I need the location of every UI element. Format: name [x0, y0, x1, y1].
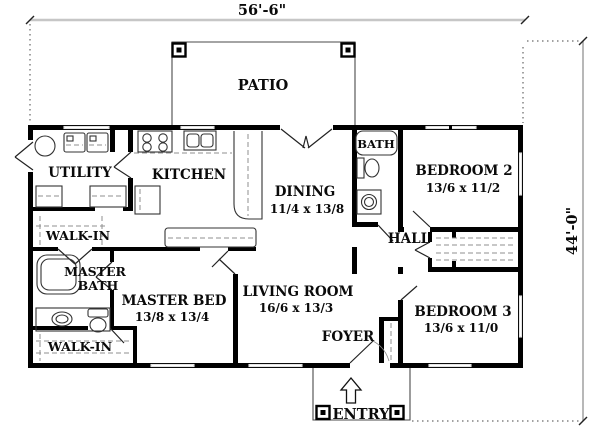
kitchen-pantry: [135, 186, 160, 214]
window-living: [248, 364, 303, 368]
bedroom2-door: [413, 211, 430, 227]
room-label-dining: DINING: [275, 184, 336, 200]
room-size-dining: 11/4 x 13/8: [270, 202, 344, 216]
dimension-height-label: 44'-0": [564, 207, 581, 255]
room-label-kitchen: KITCHEN: [152, 167, 226, 183]
room-size-masterbed: 13/8 x 13/4: [135, 310, 209, 324]
kitchen-sink: [184, 131, 216, 150]
hall-bath-toilet: [357, 158, 379, 178]
labels-group: 56'-6" 44'-0" PATIO UTILITY KITCHEN DINI…: [45, 2, 581, 423]
floor-plan-svg: 56'-6" 44'-0" PATIO UTILITY KITCHEN DINI…: [0, 0, 600, 428]
room-label-masterbath-2: BATH: [78, 278, 119, 293]
water-heater: [35, 136, 55, 156]
hall-closet-shelves: [436, 238, 516, 260]
room-label-utility: UTILITY: [48, 165, 112, 181]
utility-kitchen-door: [114, 152, 131, 178]
window-utility: [63, 126, 110, 130]
patio-french-doors: [281, 129, 332, 148]
room-size-bedroom2: 13/6 x 11/2: [426, 181, 500, 195]
floor-plan-page: 56'-6" 44'-0" PATIO UTILITY KITCHEN DINI…: [0, 0, 600, 428]
entry-post-left: [317, 406, 330, 419]
patio-label: PATIO: [238, 77, 289, 94]
stove: [138, 131, 172, 152]
room-label-masterbed: MASTER BED: [122, 293, 227, 309]
window-bedroom3-bottom: [428, 364, 472, 368]
utility-cabinet-left: [36, 186, 62, 207]
entry-arrow-icon: [341, 378, 361, 403]
patio-post-right: [342, 44, 355, 57]
utility-cabinet-right: [90, 186, 126, 207]
room-size-living: 16/6 x 13/3: [259, 301, 333, 315]
room-label-bath: BATH: [357, 137, 395, 151]
room-label-foyer: FOYER: [322, 329, 375, 345]
window-masterbed: [150, 364, 195, 368]
entry-post-right: [391, 406, 404, 419]
hall-bath-sink: [357, 190, 381, 214]
patio-post-left: [173, 44, 186, 57]
room-label-living: LIVING ROOM: [243, 284, 354, 300]
room-label-bedroom3: BEDROOM 3: [414, 304, 511, 320]
window-kitchen: [180, 126, 215, 130]
window-bedroom2-top: [425, 125, 477, 130]
entry-label: ENTRY: [332, 406, 390, 423]
room-size-bedroom3: 13/6 x 11/0: [424, 321, 498, 335]
bedroom3-door: [401, 286, 417, 300]
dryer: [87, 133, 108, 152]
dimension-width-label: 56'-6": [238, 2, 286, 19]
room-label-hall: HALL: [388, 231, 431, 247]
room-label-masterbath-1: MASTER: [64, 264, 126, 279]
room-label-bedroom2: BEDROOM 2: [415, 163, 512, 179]
window-bedroom3-right: [519, 295, 523, 338]
room-label-walkin-upper: WALK-IN: [45, 228, 110, 243]
living-masterbed-opening-door: [219, 259, 235, 274]
kitchen-counter-right: [234, 131, 262, 219]
master-toilet: [88, 309, 108, 332]
kitchen-bar-counter: [165, 228, 256, 247]
washer: [64, 133, 85, 152]
window-bedroom2-right: [519, 152, 523, 196]
room-label-walkin-lower: WALK-IN: [47, 339, 112, 354]
